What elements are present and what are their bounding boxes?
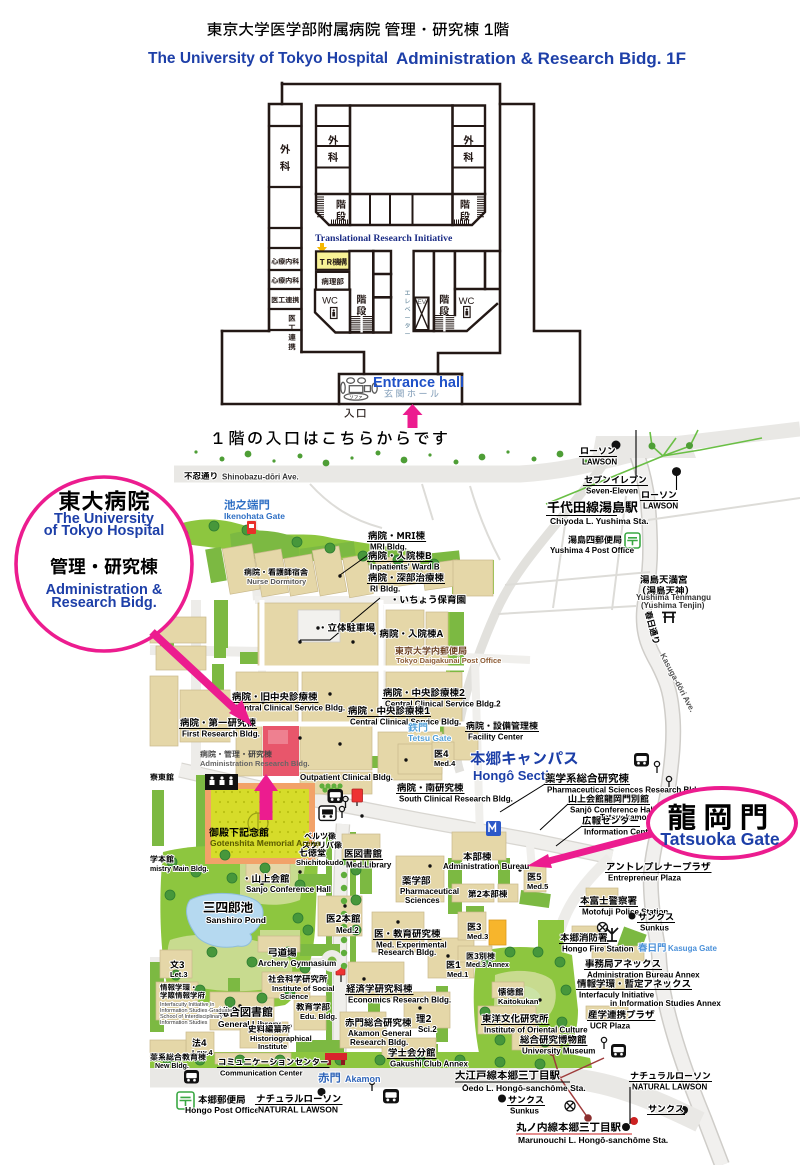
svg-text:Entrance hall: Entrance hall [373, 375, 464, 391]
svg-text:First Research Bldg.: First Research Bldg. [182, 730, 260, 739]
svg-text:The University of Tokyo Hospit: The University of Tokyo Hospital [148, 50, 388, 67]
svg-text:Tokyo Daigakunai Post Office: Tokyo Daigakunai Post Office [396, 656, 501, 665]
svg-text:Entrepreneur Plaza: Entrepreneur Plaza [608, 874, 681, 883]
svg-text:Chiyoda L. Yushima Sta.: Chiyoda L. Yushima Sta. [550, 516, 649, 526]
svg-text:Sanjo Conference Hall: Sanjo Conference Hall [246, 885, 331, 894]
svg-text:in Information Studies Annex: in Information Studies Annex [610, 999, 721, 1008]
svg-text:Administration Bureau Annex: Administration Bureau Annex [587, 971, 700, 980]
svg-text:Archery Gymnasium: Archery Gymnasium [258, 959, 336, 968]
svg-text:New Bldg.: New Bldg. [155, 1063, 189, 1070]
svg-text:Med.3: Med.3 [467, 932, 488, 941]
svg-text:Med.Library: Med.Library [346, 861, 392, 870]
svg-text:Kaitokukan: Kaitokukan [498, 997, 539, 1006]
svg-text:WC: WC [322, 296, 338, 307]
svg-text:Med.4: Med.4 [434, 759, 456, 768]
svg-text:Shichitokudo: Shichitokudo [296, 858, 344, 867]
svg-text:Tatsuoka Gate: Tatsuoka Gate [660, 829, 780, 849]
svg-text:RI Bldg.: RI Bldg. [370, 585, 400, 594]
svg-text:LAWSON: LAWSON [582, 458, 617, 467]
svg-text:UCR Plaza: UCR Plaza [590, 1022, 631, 1031]
svg-text:South Clinical Research Bldg.: South Clinical Research Bldg. [399, 795, 513, 804]
svg-text:Sanshiro Pond: Sanshiro Pond [206, 915, 266, 925]
svg-text:Ikenohata Gate: Ikenohata Gate [224, 511, 285, 521]
svg-text:Akamon: Akamon [345, 1074, 381, 1084]
svg-text:Research Bidg.: Research Bidg. [51, 595, 157, 611]
svg-text:Hongo Post Office: Hongo Post Office [185, 1105, 259, 1115]
svg-text:Ōedo L. Hongō-sanchôme Sta.: Ōedo L. Hongō-sanchôme Sta. [462, 1083, 586, 1093]
svg-text:Med.5: Med.5 [527, 882, 548, 891]
svg-text:Central Clinical Service Bldg.: Central Clinical Service Bldg. [234, 704, 345, 713]
svg-text:Hongo Fire Station: Hongo Fire Station [562, 945, 634, 954]
svg-text:Akamon General: Akamon General [348, 1029, 412, 1038]
svg-text:WC: WC [459, 296, 475, 307]
svg-text:Information Studies: Information Studies [160, 1020, 208, 1026]
svg-text:Pharmaceutical: Pharmaceutical [400, 887, 459, 896]
svg-text:Sciences: Sciences [405, 896, 440, 905]
svg-text:Administration & Research Bidg: Administration & Research Bidg. 1F [396, 49, 686, 68]
svg-text:(Yushima Tenjin): (Yushima Tenjin) [641, 601, 705, 610]
svg-text:Communication Center: Communication Center [220, 1069, 303, 1078]
svg-text:Yushima 4 Post Office: Yushima 4 Post Office [550, 546, 635, 555]
svg-text:Edu. Bldg.: Edu. Bldg. [300, 1012, 337, 1021]
svg-text:Administration Research Bldg.: Administration Research Bldg. [200, 759, 310, 768]
svg-text:Nurse Dormitory: Nurse Dormitory [247, 577, 307, 586]
svg-text:Central Clinical Service Bldg.: Central Clinical Service Bldg. [350, 718, 461, 727]
svg-text:LAWSON: LAWSON [643, 502, 678, 511]
svg-text:NATURAL LAWSON: NATURAL LAWSON [258, 1105, 338, 1115]
svg-text:Outpatient Clinical Bldg.: Outpatient Clinical Bldg. [300, 773, 393, 782]
svg-text:Institute: Institute [258, 1042, 287, 1051]
svg-text:Med.2: Med.2 [336, 926, 359, 935]
svg-text:Science: Science [280, 992, 308, 1001]
svg-text:University Museum: University Museum [522, 1047, 595, 1056]
svg-text:EV: EV [417, 299, 426, 306]
svg-text:Translational Research Initiat: Translational Research Initiative [315, 233, 453, 244]
svg-text:Administration Bureau: Administration Bureau [443, 862, 529, 871]
svg-text:Economics Research Bldg.: Economics Research Bldg. [348, 996, 451, 1005]
svg-text:Institute of Oriental Culture: Institute of Oriental Culture [484, 1026, 588, 1035]
svg-text:Med.1: Med.1 [447, 970, 468, 979]
svg-text:Tetsu Gate: Tetsu Gate [408, 733, 452, 743]
svg-text:MRI Bldg.: MRI Bldg. [370, 543, 407, 552]
svg-text:Facility Center: Facility Center [468, 733, 523, 742]
svg-text:Kasuga Gate: Kasuga Gate [668, 944, 717, 953]
svg-text:Shinobazu-dōri Ave.: Shinobazu-dōri Ave. [222, 473, 299, 482]
svg-text:Research Bldg.: Research Bldg. [350, 1038, 408, 1047]
svg-text:of Tokyo Hospital: of Tokyo Hospital [44, 523, 165, 539]
svg-text:Med.3 Annex: Med.3 Annex [466, 962, 509, 969]
svg-text:Gotenshita Memorial Arena: Gotenshita Memorial Arena [210, 838, 320, 848]
svg-text:Sunkus: Sunkus [510, 1107, 539, 1116]
svg-text:Gakushi Club Annex: Gakushi Club Annex [390, 1060, 468, 1069]
svg-text:Sci.2: Sci.2 [418, 1025, 437, 1034]
svg-text:Marunouchi L. Hongō-sanchôme S: Marunouchi L. Hongō-sanchôme Sta. [518, 1135, 668, 1145]
svg-text:Let.3: Let.3 [170, 970, 188, 979]
svg-text:mistry Main Bldg.: mistry Main Bldg. [150, 866, 208, 873]
svg-text:Research Bldg.: Research Bldg. [378, 948, 436, 957]
svg-text:Sunkus: Sunkus [640, 924, 669, 933]
svg-text:Inpatients' Ward B: Inpatients' Ward B [370, 563, 440, 572]
svg-text:NATURAL LAWSON: NATURAL LAWSON [632, 1083, 707, 1092]
svg-text:Seven-Eleven: Seven-Eleven [586, 487, 638, 496]
